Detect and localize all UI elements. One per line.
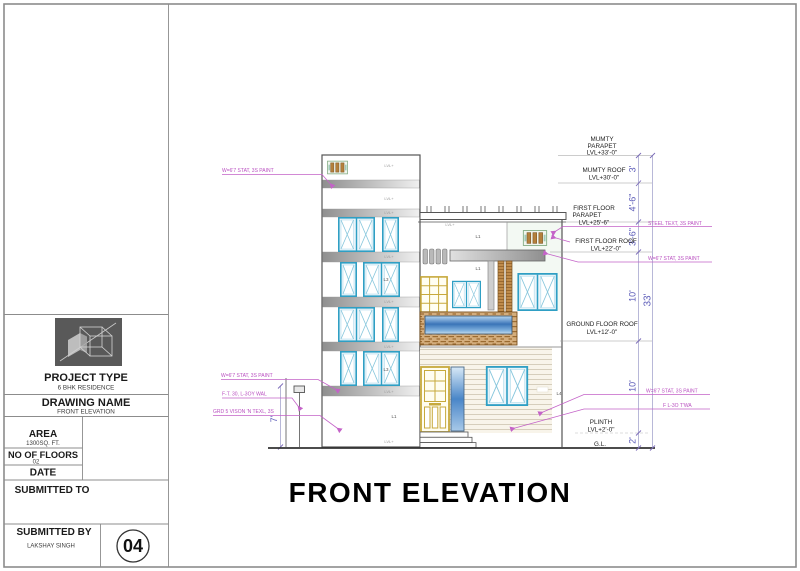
label-mumty-roof-1: MUMTY ROOF [583,167,626,174]
door-sidelight-glass [451,367,464,431]
upper-louver-window [523,231,546,246]
area-label: AREA [29,429,57,440]
label-plinth-1: PLINTH [590,419,613,426]
drawing-name-value: FRONT ELEVATION [57,409,115,416]
drawing-sheet: PROJECT TYPE 6 BHK RESIDENCE DRAWING NAM… [0,0,800,571]
left-tower [322,155,420,447]
window [339,308,374,341]
label-ground-line: G.L. [594,441,606,448]
label-ff-parapet-lvl: LVL+25'-6" [579,220,609,227]
submitted-by-label: SUBMITTED BY [17,527,92,538]
elevation-drawing-canvas: PROJECT TYPE 6 BHK RESIDENCE DRAWING NAM… [0,0,800,571]
annotation-a3: F-T. 30, L-3OY WAL [222,392,267,398]
label-mumty-roof-lvl: LVL+30'-0" [589,175,619,182]
window [341,352,356,385]
window [383,308,398,341]
floors-value: 02 [33,460,40,466]
entrance-steps [420,432,476,448]
level-marker: LVL+ [384,210,394,215]
window [518,274,556,310]
balcony-glazed-door [421,277,447,312]
annotation-r1: STEEL TEXT, 3S PAINT [648,221,702,227]
glass-balustrade [425,316,512,334]
sheet-number-badge: 04 [117,530,149,562]
label-mumty-parapet-1: MUMTY [590,136,614,143]
label-gf-roof-1: GROUND FLOOR ROOF [566,321,638,328]
floors-label: NO OF FLOORS [8,450,78,460]
window [364,352,399,385]
area-value: 1300SQ. FT. [26,441,60,447]
wall-vent [537,387,548,392]
level-marker: LVL+ [384,344,394,349]
level-marker: LVL+ [384,389,394,394]
level-marker: LVL+ [384,254,394,259]
window-tag-l3: L3 [383,277,389,282]
label-gf-roof-lvl: LVL+12'-0" [587,329,617,336]
annotation-r2: W=6'7 STAT, 3S PAINT [648,256,700,262]
dimension-lines: 3' 4'-6" 3'-6" 10' 10' 2' 33' [628,153,656,451]
window [383,218,398,251]
submitted-to-label: SUBMITTED TO [15,485,90,496]
project-type-value: 6 BHK RESIDENCE [58,385,115,392]
label-mumty-parapet-lvl: LVL+33'-0" [587,150,617,157]
window-tag-l1: L1 [475,234,481,239]
mumty-louver-window [327,161,347,174]
window-tag-l1: L1 [475,266,481,271]
submitted-by-value: LAKSHAY SINGH [27,544,75,550]
window [453,281,481,307]
window [339,218,374,251]
annotation-a4: GRD 5 VISON 'N TEXL, 3S [213,409,275,415]
window-tag-l4: L4 [556,391,562,396]
annotation-r4: F L-3O T'WA [663,403,692,409]
label-plinth-lvl: LVL+2'-0" [588,427,615,434]
label-ff-parapet-2: PARAPET [573,212,602,219]
project-type-label: PROJECT TYPE [44,372,128,384]
label-ff-roof-lvl: LVL+22'-0" [591,246,621,253]
window-tag-l1: L1 [391,414,397,419]
company-logo [55,318,122,366]
main-door [421,367,449,432]
label-ff-parapet-1: FIRST FLOOR [573,205,615,212]
drawing-name-label: DRAWING NAME [42,397,131,409]
dim-mumty-parapet: 3' [628,165,638,172]
date-label: DATE [30,468,57,479]
label-ff-roof-1: FIRST FLOOR ROOF [575,238,637,245]
dim-mumty-roof: 4'-6" [628,194,638,212]
boundary-wall: 7' [269,378,305,450]
level-marker: LVL+ [384,196,394,201]
dim-first-floor: 10' [628,290,638,302]
parapet-slab [418,206,566,222]
drawing-title: FRONT ELEVATION [289,477,572,508]
column [488,261,494,310]
level-marker: LVL+ [384,439,394,444]
dim-total-height: 33' [643,293,654,306]
annotation-a2: W=6'7 STAT, 3S PAINT [221,373,273,379]
window [364,263,399,296]
balcony-parapet [420,312,517,345]
dim-ground-floor: 10' [628,380,638,392]
window [341,263,356,296]
dim-plinth: 2' [628,437,638,444]
sheet-number: 04 [123,536,143,556]
level-marker: LVL+ [384,163,394,168]
dim-boundary-wall: 7' [269,415,279,422]
annotation-a1: W=6'7 STAT, 3S PAINT [222,168,274,174]
window [487,367,527,405]
level-marker: LVL+ [445,222,455,227]
window-tag-l3: L3 [383,367,389,372]
level-marker: LVL+ [384,299,394,304]
pillar-cap [294,386,305,393]
annotation-r3: W=6'7 STAT, 3S PAINT [646,389,698,395]
